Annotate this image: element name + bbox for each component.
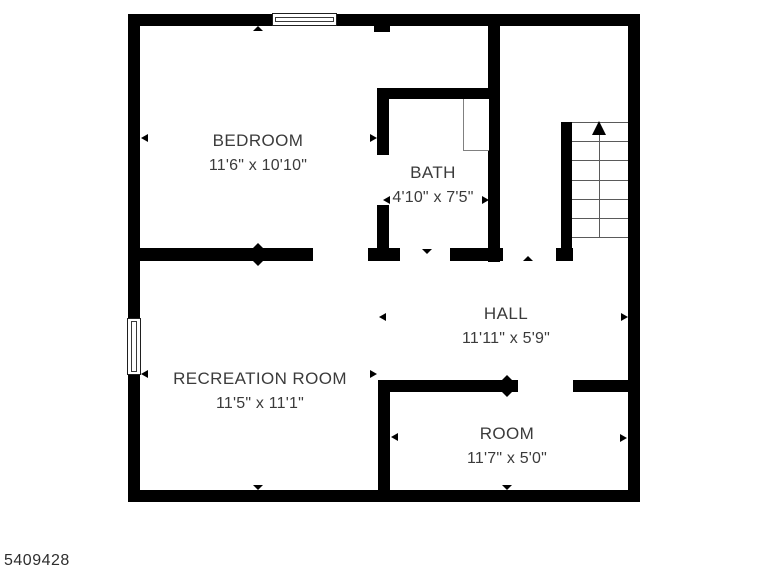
dim-arrow-recreation-left: [141, 370, 148, 378]
wall-stair-left: [561, 122, 572, 248]
room-name: BEDROOM: [209, 130, 307, 151]
window-pane: [131, 321, 137, 372]
wall-bedroom-bottom-jamb: [368, 248, 400, 261]
stair-tread: [572, 219, 628, 237]
stair-treads: [572, 122, 628, 238]
dim-arrow-recreation-right: [370, 370, 377, 378]
room-name: BATH: [392, 162, 473, 183]
room-dimensions: 4'10" x 7'5": [392, 188, 473, 208]
wall-bath-top: [377, 88, 488, 99]
label-hall: HALL 11'11" x 5'9": [462, 303, 550, 349]
wall-room-top-right: [573, 380, 628, 392]
room-name: HALL: [462, 303, 550, 324]
room-dimensions: 11'6" x 10'10": [209, 156, 307, 176]
dim-arrow-hall-right: [621, 313, 628, 321]
stair-tread: [572, 200, 628, 219]
room-dimensions: 11'5" x 11'1": [173, 394, 347, 414]
wall-bath-bottom: [450, 248, 503, 261]
dim-arrow-bedroom-left: [141, 134, 148, 142]
shower-fixture: [463, 99, 489, 151]
dim-arrow-room-right: [620, 434, 627, 442]
stair-run-line: [599, 135, 600, 238]
tick-room-wall-up: [502, 375, 512, 380]
window-top: [272, 13, 337, 26]
wall-bedroom-bottom: [140, 248, 313, 261]
floor-plan: BEDROOM 11'6" x 10'10" BATH 4'10" x 7'5"…: [0, 0, 768, 576]
listing-id: 5409428: [4, 552, 70, 570]
tick-bath-door: [422, 249, 432, 254]
wall-outer-top: [128, 14, 640, 26]
stair-tread: [572, 142, 628, 161]
room-dimensions: 11'7" x 5'0": [467, 449, 547, 469]
tick-top-wall: [253, 26, 263, 31]
wall-bath-right: [488, 26, 500, 262]
room-name: ROOM: [467, 423, 547, 444]
dim-arrow-room-left: [391, 433, 398, 441]
wall-room-top-left: [378, 380, 518, 392]
tick-room-wall-down: [502, 392, 512, 397]
wall-bedroom-door-jamb: [374, 26, 390, 32]
stair-tread: [572, 161, 628, 180]
wall-room-left: [378, 380, 390, 490]
label-recreation-room: RECREATION ROOM 11'5" x 11'1": [173, 368, 347, 414]
window-pane: [275, 17, 334, 22]
wall-outer-right: [628, 14, 640, 502]
wall-stair-foot: [556, 248, 573, 261]
tick-hall-door: [523, 256, 533, 261]
wall-outer-left: [128, 14, 140, 502]
dim-arrow-bath-right: [482, 196, 489, 204]
room-dimensions: 11'11" x 5'9": [462, 329, 550, 349]
label-room: ROOM 11'7" x 5'0": [467, 423, 547, 469]
tick-bedroom-wall-down: [253, 261, 263, 266]
stairs-up-arrow-icon: [592, 121, 606, 135]
wall-outer-bottom: [128, 490, 640, 502]
tick-bottom-wall-right: [502, 485, 512, 490]
room-name: RECREATION ROOM: [173, 368, 347, 389]
dim-arrow-bedroom-right: [370, 134, 377, 142]
dim-arrow-hall-left: [379, 313, 386, 321]
tick-bottom-wall-left: [253, 485, 263, 490]
wall-bath-left-lower: [377, 205, 389, 248]
label-bedroom: BEDROOM 11'6" x 10'10": [209, 130, 307, 176]
window-left: [127, 318, 141, 375]
label-bath: BATH 4'10" x 7'5": [392, 162, 473, 208]
dim-arrow-bath-left: [383, 196, 390, 204]
stair-tread: [572, 181, 628, 200]
tick-bath-top: [422, 94, 432, 99]
tick-bedroom-wall-up: [253, 243, 263, 248]
